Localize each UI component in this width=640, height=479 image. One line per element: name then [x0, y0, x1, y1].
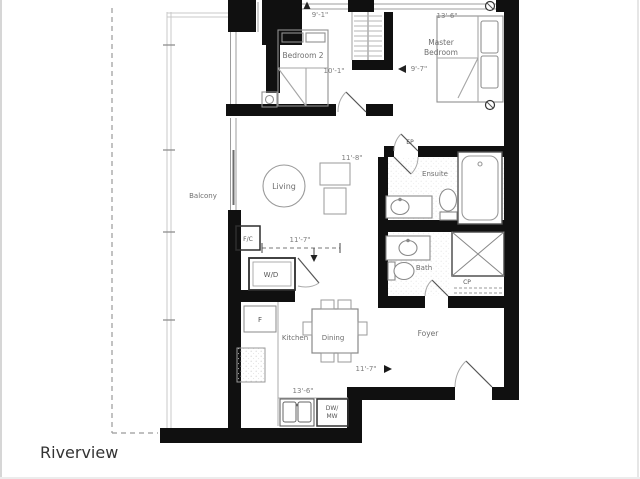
master-bed-linens — [437, 16, 478, 102]
foyer-label: Foyer — [418, 329, 440, 338]
ensuite-toilet-bowl — [440, 189, 457, 211]
wall-foyer-bottom-left — [347, 387, 455, 400]
bath-sink — [399, 241, 417, 256]
cooktop — [237, 348, 265, 382]
laundry: F/C W/D — [236, 226, 295, 290]
dishwasher-label: DW/ — [326, 405, 340, 412]
scan-edge-artifacts — [0, 0, 640, 479]
balcony-railing — [167, 12, 228, 428]
master-dim-arrow — [398, 65, 406, 73]
bedroom2-door-leaf — [346, 92, 366, 112]
foyer-dim: 11'-7" — [355, 365, 376, 373]
bedroom2-door-arc — [338, 92, 346, 112]
ensuite-toilet-tank — [440, 212, 457, 220]
bath-faucet — [407, 239, 409, 241]
closet-label: CP — [463, 279, 471, 286]
dining: Dining — [303, 300, 367, 362]
foyer-dim-arrow — [384, 365, 392, 373]
living-width-dim: 11'-8" — [341, 154, 362, 162]
bedroom2-width-dim: 9'-1" — [312, 11, 329, 19]
bedroom2-depth-dim: 10'-1" — [323, 67, 344, 75]
floor-plan-page: Balcony — [0, 0, 640, 479]
dining-chair-bottom-left — [321, 353, 334, 362]
down-arrow — [311, 255, 318, 262]
master-top-window — [374, 4, 496, 9]
closet-shelf-dashes — [454, 288, 502, 293]
sink-basin-right — [298, 402, 311, 422]
wall-bath-left — [378, 157, 388, 308]
bedroom2-lamp — [266, 96, 274, 104]
dining-chair-top-right — [338, 300, 351, 309]
bedroom2-dim-arrow — [304, 2, 311, 10]
dining-label: Dining — [322, 334, 345, 342]
dining-table — [312, 309, 358, 353]
wall-right — [504, 0, 519, 400]
master-pillow-top — [481, 21, 498, 53]
balcony: Balcony — [112, 8, 228, 433]
kitchen-width-dim: 13'-6" — [292, 387, 313, 395]
laundry-door-leaf — [298, 258, 319, 283]
master-pillow-bottom — [481, 56, 498, 88]
ensuite-faucet — [399, 198, 401, 200]
dining-chair-right — [358, 322, 367, 335]
ensuite-label: Ensuite — [422, 170, 448, 178]
microwave-label: MW — [326, 413, 337, 420]
bedroom2-bed-linens — [278, 68, 328, 106]
wall-bath-bottom-right — [448, 296, 504, 308]
wall-laundry-bottom — [228, 290, 295, 302]
wall-bedroom2-door-stub — [366, 104, 393, 116]
master-depth-dim: 9'-7" — [411, 65, 428, 73]
bedroom2-label: Bedroom 2 — [282, 51, 323, 60]
wall-bath-bottom-left — [378, 296, 425, 308]
living-chair — [320, 163, 350, 185]
master-label-line2: Bedroom — [424, 48, 458, 57]
living-table — [324, 188, 346, 214]
entry-door-leaf — [466, 361, 492, 387]
balcony-projection-dashed-line — [112, 8, 158, 433]
living-depth-dim: 11'-7" — [289, 236, 310, 244]
dining-chair-bottom-right — [338, 353, 351, 362]
wall-top-left-stub — [228, 0, 256, 32]
bath-label: Bath — [416, 264, 432, 272]
master-width-dim: 13'-6" — [436, 12, 457, 20]
master-door-arc — [394, 134, 401, 151]
entry-door-arc — [455, 361, 466, 387]
left-edge-line — [0, 0, 2, 479]
railing-tick-marks — [163, 45, 175, 320]
laundry-door-arc — [298, 283, 319, 287]
bedroom2-pillow-right — [306, 33, 325, 42]
wall-top-mid-stub — [348, 0, 374, 12]
wall-bottom — [160, 428, 362, 443]
master-bed — [437, 16, 503, 102]
master-label-line1: Master — [428, 38, 455, 47]
kitchen: F DW/ MW Kitchen — [237, 302, 348, 426]
wall-closet-bottom — [352, 60, 393, 70]
dining-chair-top-left — [321, 300, 334, 309]
plan-title: Riverview — [40, 443, 118, 462]
fridge-label: F — [258, 316, 262, 324]
dim-ticks — [262, 243, 340, 258]
wall-left-lower — [228, 210, 241, 432]
electrical-panel-label: EP — [406, 139, 414, 146]
floor-plan-drawing: Balcony — [0, 0, 640, 479]
bath-toilet-bowl — [394, 263, 414, 280]
living-label: Living — [272, 182, 296, 191]
fan-coil-label: F/C — [243, 236, 253, 243]
balcony-label: Balcony — [189, 192, 217, 200]
ensuite-sink — [391, 200, 409, 215]
foyer: Foyer 11'-7" — [355, 329, 439, 373]
washer-dryer-label: W/D — [264, 271, 279, 279]
bathtub — [458, 152, 502, 224]
sink-faucet — [296, 404, 299, 407]
living: Living — [262, 163, 350, 262]
wall-master-door-stub — [384, 146, 394, 157]
wall-closet-divider — [384, 12, 393, 66]
sink-basin-left — [283, 402, 296, 422]
bedroom2-balcony-window — [231, 32, 237, 104]
wall-foyer-bottom-right — [492, 387, 519, 400]
right-edge-line — [637, 0, 639, 479]
